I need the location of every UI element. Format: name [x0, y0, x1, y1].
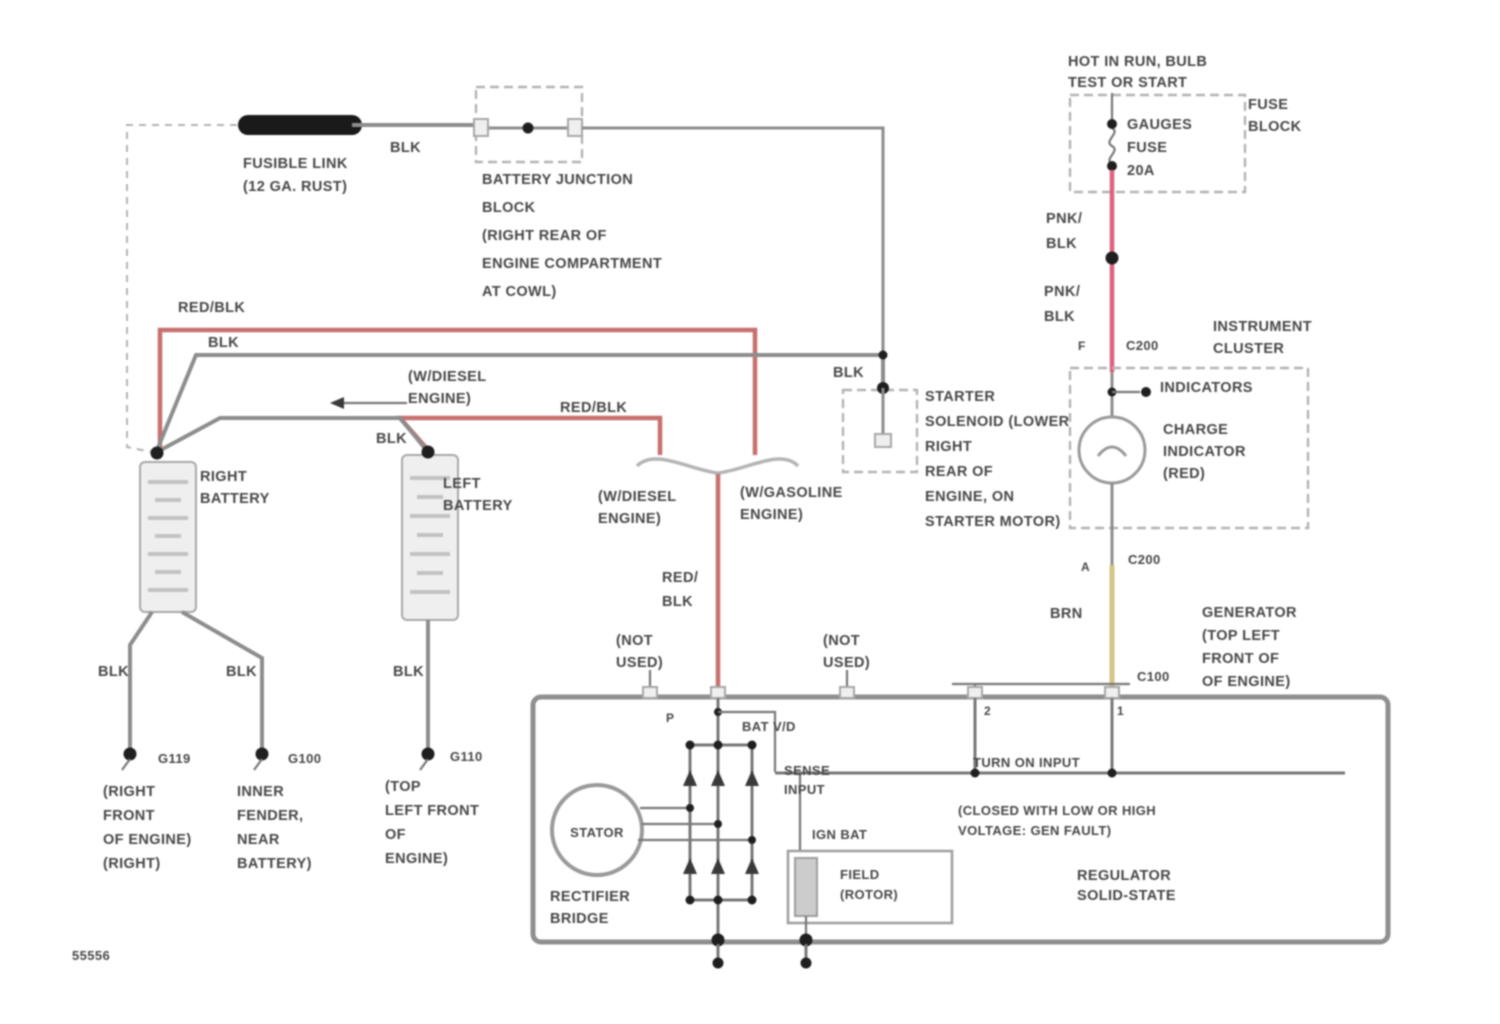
- wire-blk-left-battery: BLK: [376, 431, 407, 447]
- solenoid-tee-dot: [879, 351, 888, 360]
- connector-c200-top: C200: [1126, 338, 1159, 353]
- solenoid-outline: [843, 390, 917, 472]
- turn-on-input-label: TURN ON INPUT: [973, 755, 1080, 770]
- pin-1: 1: [1117, 704, 1124, 718]
- diode-icon: [683, 770, 697, 786]
- gen-fault-label: (CLOSED WITH LOW OR HIGHVOLTAGE: GEN FAU…: [958, 803, 1156, 838]
- generator-terminal-p: [643, 687, 657, 698]
- dashed-wire-path: [127, 125, 237, 452]
- bridge-node: [748, 741, 757, 750]
- junction-block-terminal-right: [568, 119, 582, 136]
- fuse-terminal-bottom: [1107, 161, 1117, 171]
- right-battery-label: RIGHTBATTERY: [200, 469, 270, 507]
- field-coil-icon: [795, 858, 817, 916]
- diode-icon: [711, 770, 725, 786]
- gen-ground-node-1: [713, 958, 724, 969]
- ground-tail: [420, 759, 428, 770]
- generator-label: GENERATOR(TOP LEFTFRONT OFOF ENGINE): [1202, 605, 1297, 690]
- diode-icon: [745, 770, 759, 786]
- left-battery-positive-node: [422, 446, 435, 459]
- bus-node: [1108, 769, 1117, 778]
- stator-node: [686, 804, 694, 812]
- sense-input-label: SENSEINPUT: [784, 763, 830, 797]
- generator-terminal-2: [968, 687, 982, 698]
- ground-code-g119: G119: [158, 751, 191, 766]
- pin-f: F: [1078, 339, 1086, 353]
- not-used-left: (NOTUSED): [616, 633, 663, 671]
- wire-blk-g119: [130, 612, 152, 748]
- indicators-node: [1141, 387, 1151, 397]
- w-diesel-arrow-icon: [330, 397, 344, 409]
- charging-circuit-diagram: FUSIBLE LINK(12 GA. RUST)BLKBATTERY JUNC…: [0, 0, 1500, 1024]
- battery-junction-block: [474, 87, 883, 352]
- starter-solenoid-label: STARTERSOLENOID (LOWERRIGHTREAR OFENGINE…: [925, 389, 1070, 530]
- ign-bat-label: IGN BAT: [812, 827, 867, 842]
- ground-tail: [122, 759, 130, 770]
- dashed-guide-wire: [127, 125, 237, 452]
- diode-icon: [711, 858, 725, 874]
- diode-icon: [683, 858, 697, 874]
- gen-ground-node-2: [801, 958, 812, 969]
- wire-blk-block-to-solenoid: [582, 128, 883, 352]
- bridge-node: [686, 741, 695, 750]
- solenoid-terminal: [875, 434, 891, 447]
- pnk-blk-circuit: [1106, 170, 1119, 372]
- diagram-id: 55556: [72, 948, 110, 963]
- bulb-filament-icon: [1098, 447, 1126, 456]
- wire-blk-g100: [182, 612, 262, 748]
- labels-layer: FUSIBLE LINK(12 GA. RUST)BLKBATTERY JUNC…: [72, 54, 1312, 963]
- wire-red-blk-left-battery: [400, 418, 660, 455]
- bridge-node: [748, 896, 757, 905]
- blk-circuit: [157, 351, 888, 453]
- fusible-link-label: FUSIBLE LINK(12 GA. RUST): [243, 156, 348, 195]
- bat-terminal-label: BAT V/D: [742, 719, 796, 734]
- right-battery: [140, 447, 196, 613]
- pin-a: A: [1081, 560, 1090, 574]
- stator-node: [714, 820, 722, 828]
- diode-icon: [745, 858, 759, 874]
- fuse-icon: [1109, 128, 1114, 164]
- gauges-fuse-label: GAUGESFUSE20A: [1127, 117, 1192, 179]
- ground-icon-g110: [422, 748, 435, 761]
- brn-circuit: [952, 565, 1130, 695]
- wire-pnk-blk-lower: PNK/BLK: [1044, 284, 1080, 325]
- w-diesel-arrow-label: (W/DIESELENGINE): [408, 369, 487, 407]
- wire-blk-to-solenoid: [157, 355, 883, 450]
- fuse-terminal-top: [1107, 119, 1117, 129]
- left-battery: [402, 446, 458, 621]
- stator-label: STATOR: [570, 825, 624, 840]
- wire-red-blk-left: RED/BLK: [560, 400, 627, 416]
- generator-terminal-unused: [840, 687, 854, 698]
- regulator-label: REGULATORSOLID-STATE: [1077, 868, 1176, 904]
- connector-c100: C100: [1137, 669, 1170, 684]
- instrument-cluster-label: INSTRUMENTCLUSTER: [1213, 319, 1312, 357]
- wire-brn: BRN: [1050, 606, 1083, 622]
- right-battery-positive-node: [151, 447, 164, 460]
- junction-block-terminal-left: [474, 119, 488, 136]
- wire-blk-ground3: BLK: [393, 664, 424, 680]
- wire-blk-ground2: BLK: [226, 664, 257, 680]
- bridge-node: [714, 896, 723, 905]
- field-rotor-label: FIELD(ROTOR): [840, 867, 898, 902]
- grounds: [122, 612, 435, 770]
- generator-terminal-1: [1105, 687, 1119, 698]
- battery-junction-block-label: BATTERY JUNCTIONBLOCK(RIGHT REAR OFENGIN…: [482, 172, 662, 300]
- ground-code-g100: G100: [288, 751, 321, 766]
- junction-block-splice-dot: [523, 123, 534, 134]
- wiring-diagram-page: Charging circuit wiring diagram - dual b…: [0, 0, 1500, 1024]
- splice-dot: [1106, 252, 1119, 265]
- w-diesel-brace-label: (W/DIESELENGINE): [598, 489, 677, 527]
- stator-node: [748, 836, 756, 844]
- wire-pnk-blk-upper: PNK/BLK: [1046, 211, 1082, 252]
- wire-blk-fusible: BLK: [390, 140, 421, 156]
- bridge-node: [686, 896, 695, 905]
- wire-merge-brace-icon: [637, 459, 798, 473]
- ground3-location: (TOPLEFT FRONTOFENGINE): [385, 779, 479, 867]
- fuse-block-label: FUSEBLOCK: [1248, 97, 1302, 135]
- wire-blk-starter: BLK: [208, 335, 239, 351]
- not-used-right: (NOTUSED): [823, 633, 870, 671]
- charge-indicator-bulb-icon: [1079, 417, 1145, 483]
- indicators-label: INDICATORS: [1160, 380, 1253, 396]
- ground-code-g110: G110: [450, 749, 483, 764]
- charge-indicator-label: CHARGEINDICATOR(RED): [1163, 422, 1246, 482]
- pin-2: 2: [984, 704, 991, 718]
- bridge-node: [714, 741, 723, 750]
- w-gasoline-brace-label: (W/GASOLINEENGINE): [740, 485, 843, 523]
- wire-blk-ground1: BLK: [98, 664, 129, 680]
- ground2-location: INNERFENDER,NEARBATTERY): [237, 784, 312, 872]
- ground-tail: [254, 759, 262, 770]
- hot-in-run-label: HOT IN RUN, BULBTEST OR START: [1068, 54, 1207, 91]
- starter-solenoid: [843, 382, 917, 472]
- ground1-location: (RIGHTFRONTOF ENGINE)(RIGHT): [103, 784, 192, 872]
- connector-c200-bottom: C200: [1128, 552, 1161, 567]
- generator: [533, 670, 1388, 969]
- ground-icon-g119: [124, 748, 137, 761]
- wire-blk-solenoid: BLK: [833, 365, 864, 381]
- generator-terminal-bat: [711, 687, 725, 698]
- pin-p: P: [666, 711, 674, 725]
- ground-icon-g100: [256, 748, 269, 761]
- generator-outline: [533, 697, 1388, 942]
- wire-red-blk-center: RED/BLK: [662, 570, 698, 610]
- wire-red-blk-top: RED/BLK: [178, 300, 245, 316]
- rectifier-bridge-label: RECTIFIERBRIDGE: [550, 889, 630, 927]
